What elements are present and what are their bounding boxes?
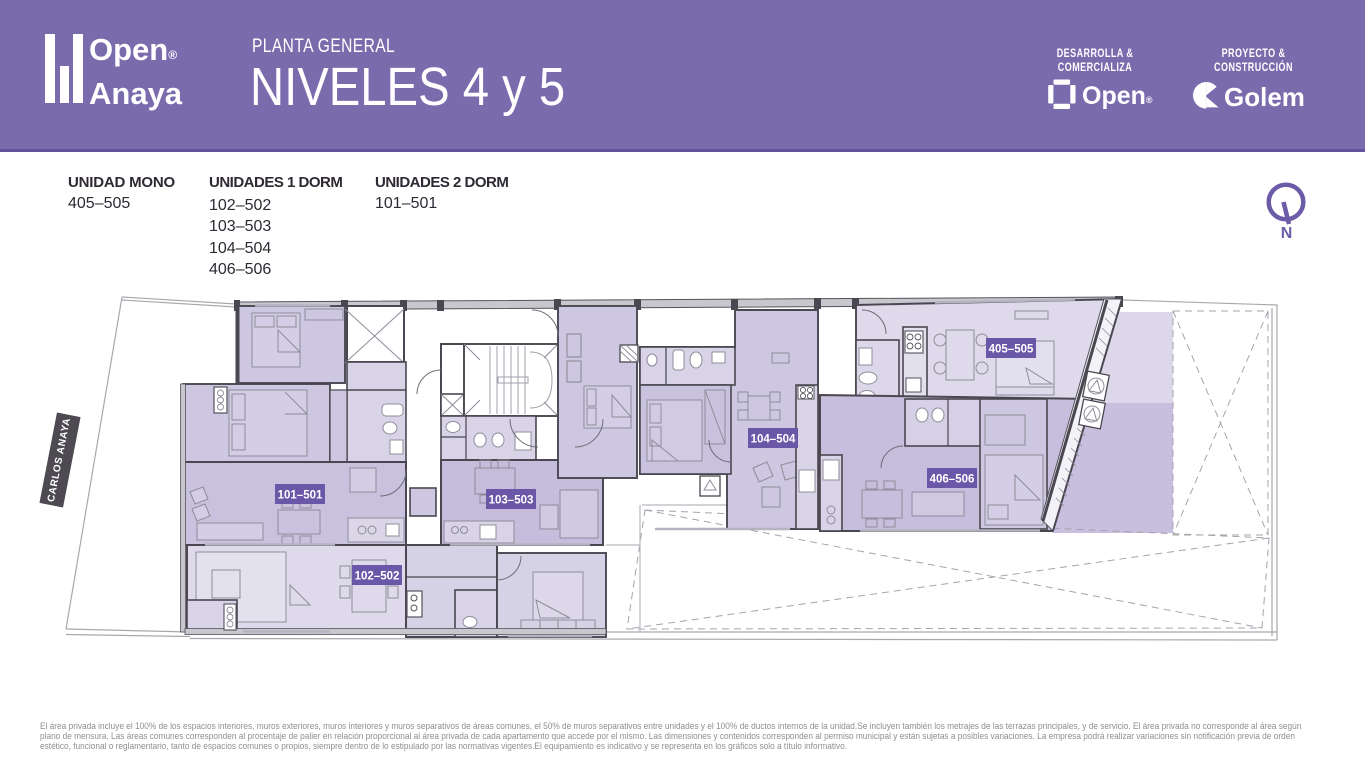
svg-text:103–503: 103–503 xyxy=(489,495,534,507)
svg-text:104–504: 104–504 xyxy=(751,434,796,446)
svg-text:101–501: 101–501 xyxy=(278,490,323,502)
svg-text:102–502: 102–502 xyxy=(355,571,400,583)
svg-text:406–506: 406–506 xyxy=(930,474,975,486)
svg-text:405–505: 405–505 xyxy=(989,344,1034,356)
